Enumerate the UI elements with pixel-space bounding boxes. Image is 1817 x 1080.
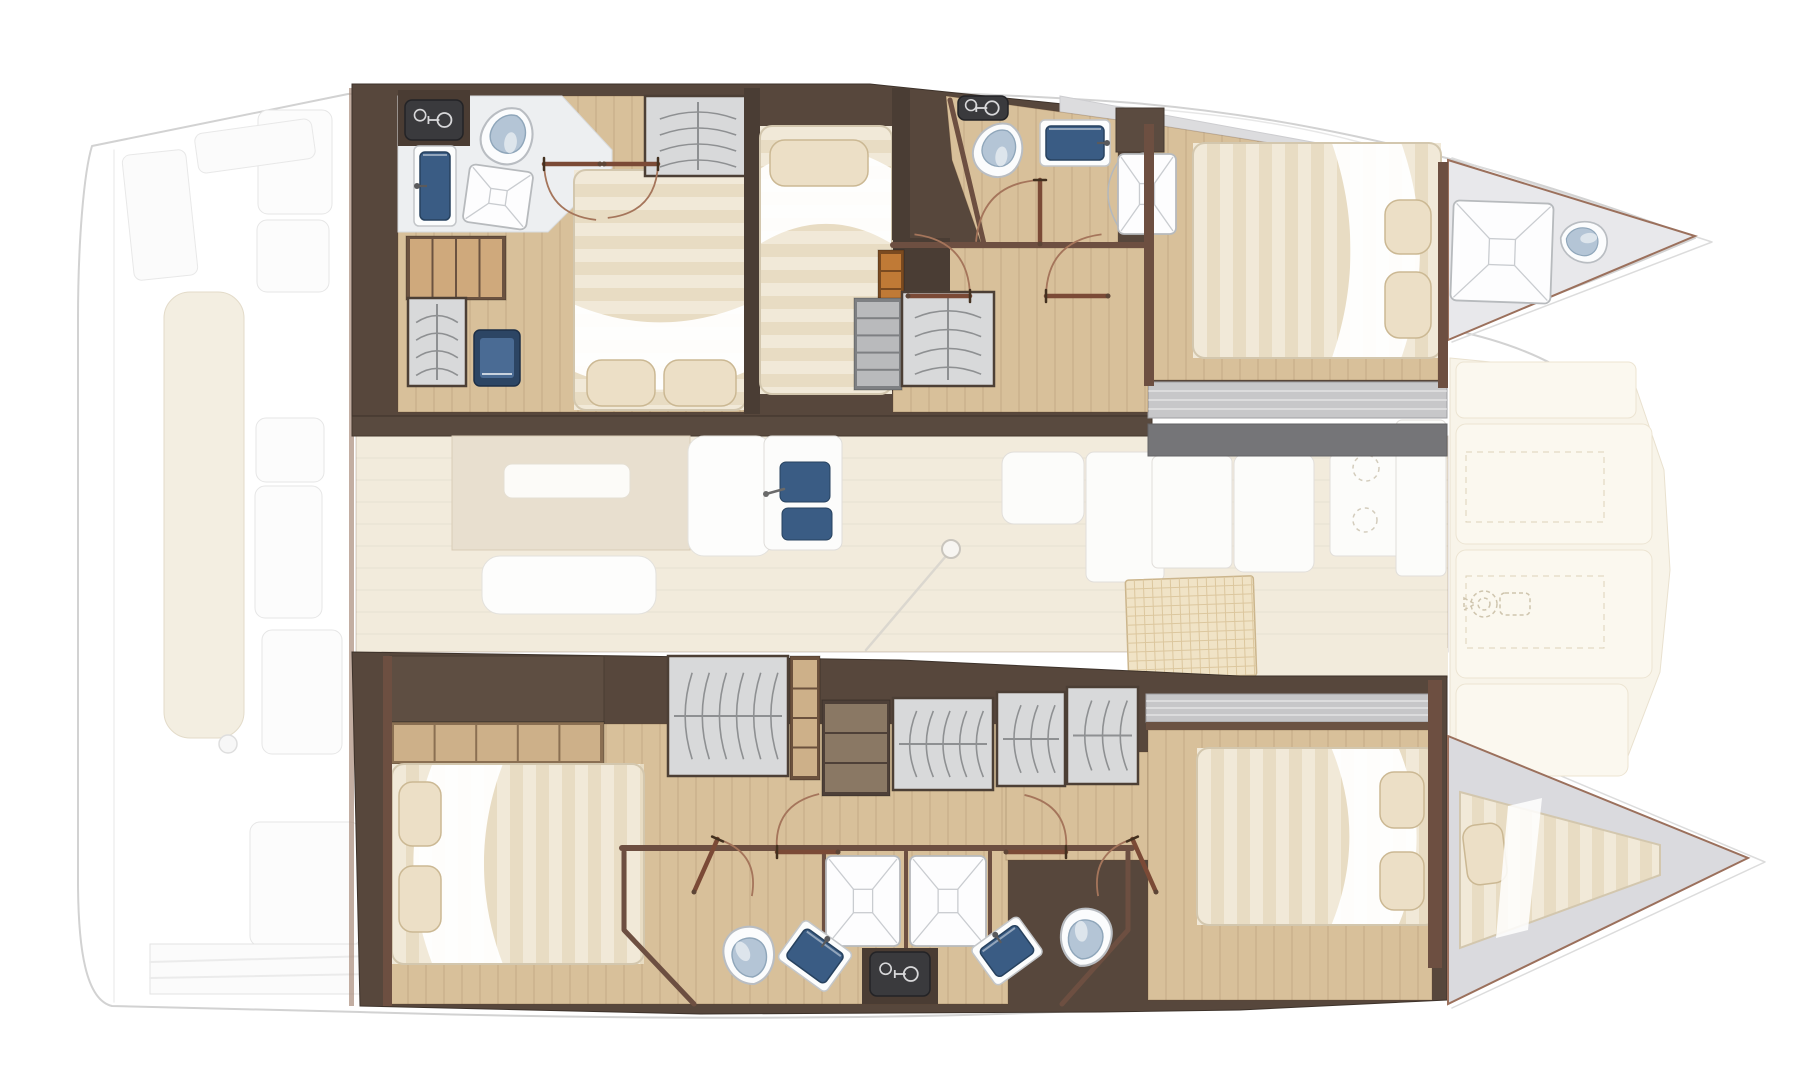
layer-foredeck [1450, 358, 1670, 780]
stb-fwd-pillow [1380, 772, 1424, 828]
floor-plan-svg [0, 0, 1817, 1080]
owner-head-locker [645, 96, 751, 176]
port-companion-steps [406, 236, 506, 300]
foredeck-panel [1456, 362, 1636, 418]
side-deck-panel [262, 630, 342, 754]
stb-aft-cabinet-band [390, 656, 604, 722]
stb-bow-berth-pillow [1461, 822, 1508, 886]
side-deck-panel [257, 220, 329, 292]
stb-bow-bulkhead [1428, 680, 1442, 968]
aft-head-shower-pan [462, 164, 533, 230]
stb-dark-shelves [822, 700, 890, 796]
stb-hanging-locker [997, 692, 1065, 786]
stb-hanging-locker [668, 656, 788, 776]
owner-bed-pillow [664, 360, 736, 406]
fwd-companion-steps [854, 298, 902, 390]
port-fwd-pillow [1385, 272, 1431, 338]
fwd-head-cabinet [1116, 108, 1164, 152]
port-coaming-band [1148, 424, 1447, 456]
stb-aft-pillow [399, 866, 441, 932]
salon-forward-wall [352, 414, 1152, 436]
berth-partition-wall [892, 88, 910, 240]
galley-cooktop [1330, 454, 1406, 556]
galley-faucet-base [763, 491, 769, 497]
foredeck-panel [1456, 550, 1652, 678]
port-companionway-band [1148, 382, 1447, 418]
aft-deck-locker [250, 822, 360, 946]
owner-tv-screen [474, 330, 520, 386]
stb-companionway-band [1146, 694, 1438, 722]
mast-post [942, 540, 960, 558]
side-deck-panel [255, 486, 322, 618]
side-deck-panel [256, 418, 324, 482]
owner-hanging-locker [408, 298, 466, 386]
aft-head-appliance [405, 100, 463, 140]
salon-sofa [688, 436, 772, 556]
galley-grate [1125, 576, 1256, 680]
galley-sink-basin [780, 462, 830, 502]
stb-aft-bulkhead [383, 656, 392, 1006]
salon-floor-extension [1240, 648, 1448, 678]
aft-head-sink [414, 146, 456, 226]
fwd-cabin-wall [1144, 124, 1154, 386]
aft-deck-panel [122, 149, 199, 281]
stb-hanging-locker [1067, 687, 1138, 784]
foredeck-panel [1456, 424, 1652, 544]
owner-bed-pillow [587, 360, 655, 406]
fwd-hanging-locker [902, 292, 994, 386]
port-forepeak-bulkhead [1438, 162, 1448, 388]
salon-table-tray [504, 464, 630, 498]
galley-counter [1002, 452, 1084, 524]
transom-steps [150, 944, 372, 994]
single-berth-pillow [770, 140, 868, 186]
fwd-head-sink [1040, 120, 1110, 166]
galley-sink-basin [782, 508, 832, 540]
cabin-partition-wall [744, 88, 760, 414]
heads-appliance [870, 952, 930, 996]
deck-hatch-circle [219, 735, 237, 753]
stb-coaming-line [1146, 722, 1438, 730]
stb-shelf-unit [790, 656, 820, 780]
stb-aft-pillow [399, 782, 441, 846]
stb-aft-shelf-band [390, 722, 604, 764]
cockpit-bench-cushion [164, 292, 244, 738]
catamaran-floorplan-image [0, 0, 1817, 1080]
galley-counter [1234, 454, 1314, 572]
stb-fwd-pillow [1380, 852, 1424, 910]
stb-shower-pan [910, 856, 986, 946]
stb-shower-pan [826, 856, 900, 946]
stb-hanging-locker [893, 698, 993, 790]
port-fwd-pillow [1385, 200, 1431, 254]
fwd-head-appliance [958, 96, 1008, 120]
forepeak-shower-pan [1450, 200, 1553, 303]
salon-bench [482, 556, 656, 614]
galley-counter [1152, 456, 1232, 568]
